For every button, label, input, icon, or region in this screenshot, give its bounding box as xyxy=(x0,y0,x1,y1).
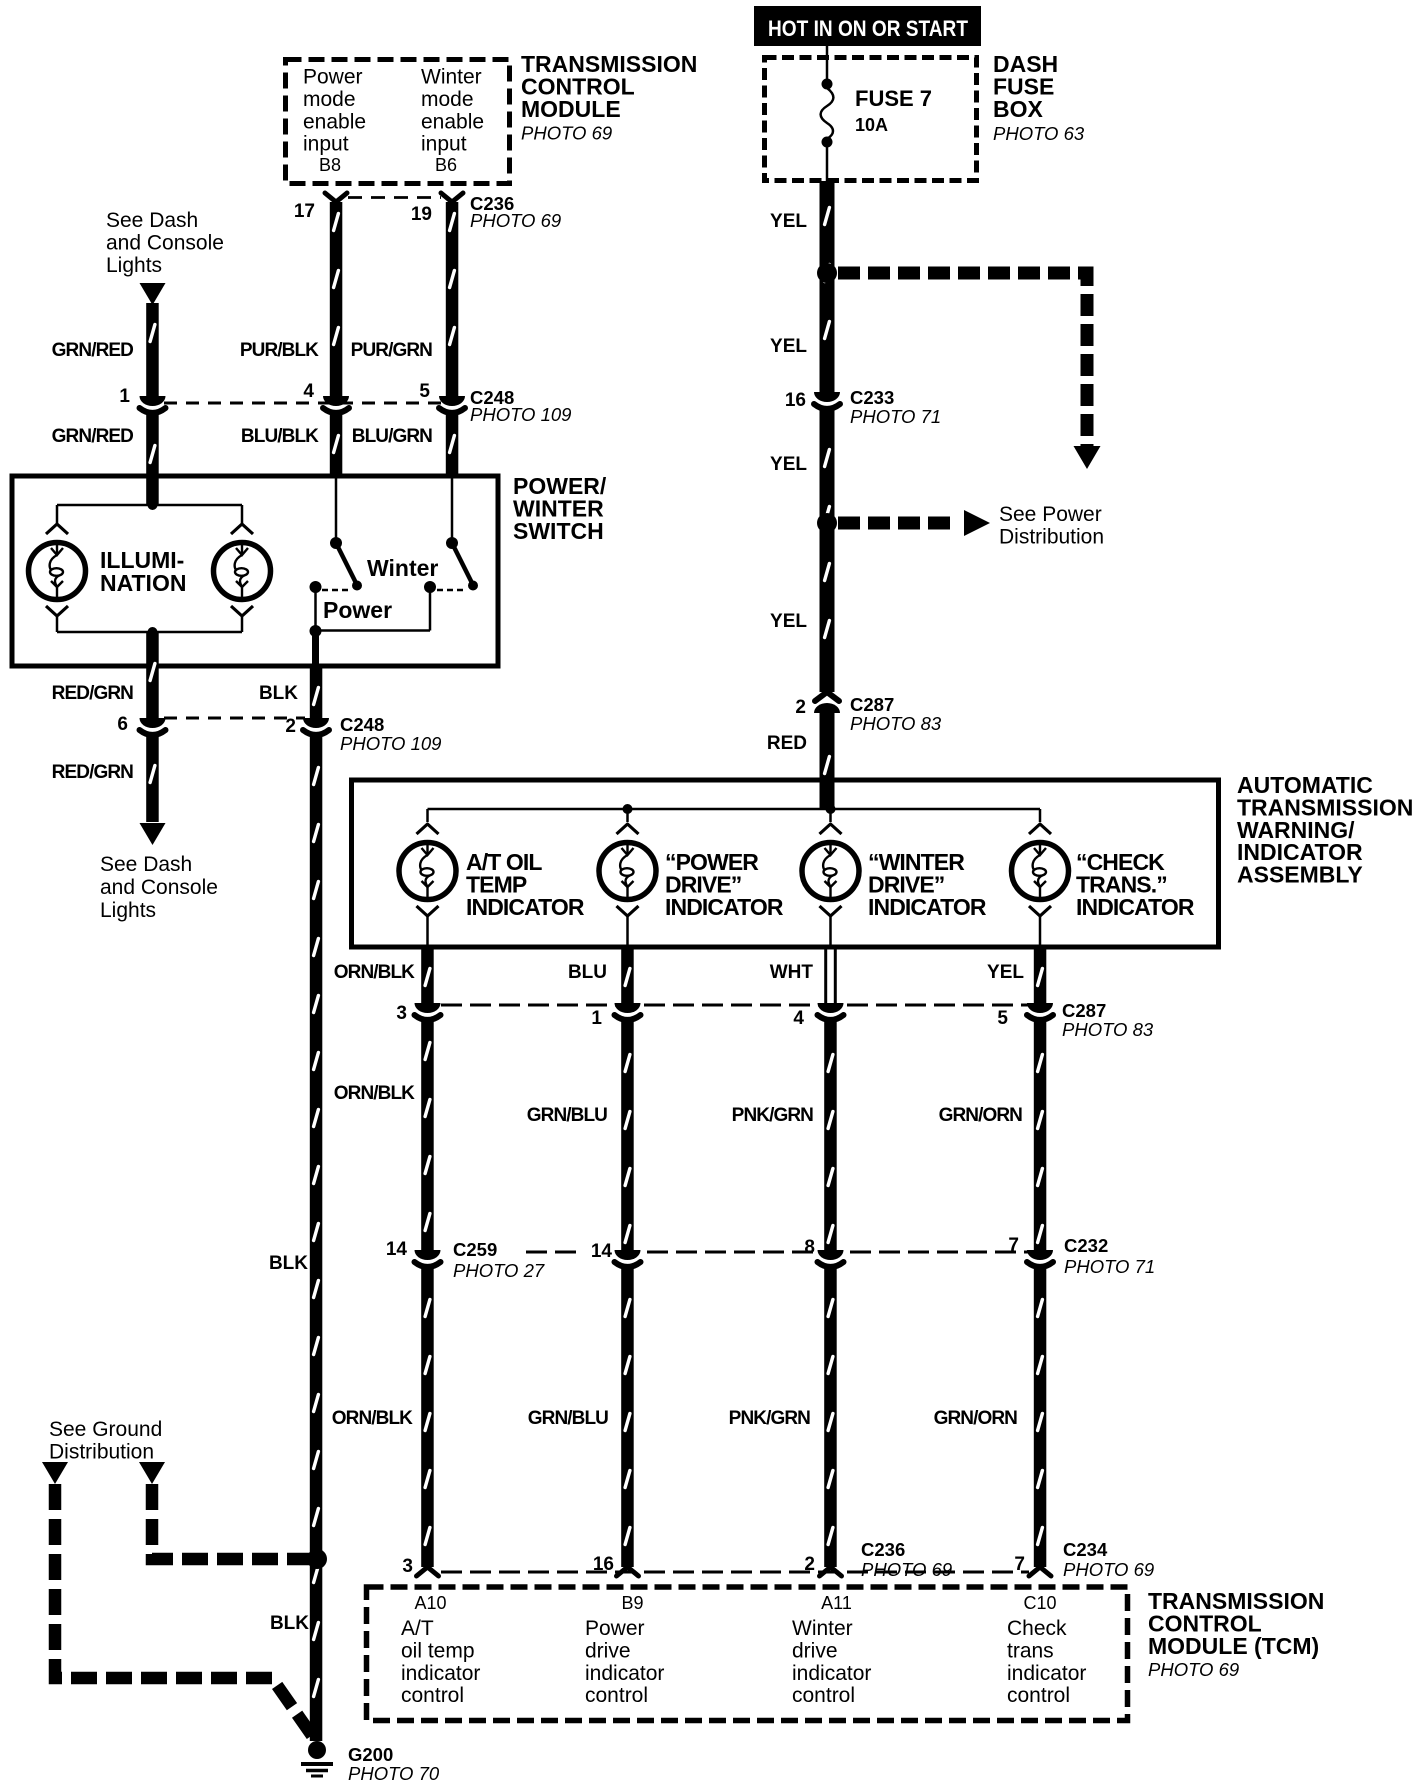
svg-text:4: 4 xyxy=(303,381,314,402)
svg-text:B8: B8 xyxy=(319,155,341,175)
svg-text:Power: Power xyxy=(303,66,363,89)
svg-text:indicator: indicator xyxy=(401,1662,480,1685)
svg-text:ORN/BLK: ORN/BLK xyxy=(332,1408,413,1429)
svg-text:PHOTO 27: PHOTO 27 xyxy=(453,1260,545,1281)
svg-text:10A: 10A xyxy=(855,115,888,135)
svg-text:RED/GRN: RED/GRN xyxy=(52,683,133,704)
svg-text:indicator: indicator xyxy=(1007,1662,1086,1685)
svg-text:GRN/ORN: GRN/ORN xyxy=(934,1408,1018,1429)
svg-text:INDICATOR: INDICATOR xyxy=(466,894,585,920)
svg-text:drive: drive xyxy=(792,1639,838,1662)
svg-text:Distribution: Distribution xyxy=(49,1440,154,1463)
svg-text:Power: Power xyxy=(323,597,392,623)
svg-text:PNK/GRN: PNK/GRN xyxy=(732,1105,813,1126)
svg-text:PHOTO 71: PHOTO 71 xyxy=(850,406,941,427)
svg-text:See Dash: See Dash xyxy=(100,853,192,876)
svg-text:INDICATOR: INDICATOR xyxy=(1076,894,1195,920)
svg-text:mode: mode xyxy=(303,88,356,111)
svg-text:1: 1 xyxy=(119,386,130,407)
svg-text:trans: trans xyxy=(1007,1639,1054,1662)
svg-text:drive: drive xyxy=(585,1639,631,1662)
svg-text:GRN/BLU: GRN/BLU xyxy=(527,1105,607,1126)
svg-text:G200: G200 xyxy=(348,1744,393,1765)
svg-text:5: 5 xyxy=(997,1008,1008,1029)
svg-text:BLU/GRN: BLU/GRN xyxy=(352,426,432,447)
svg-text:PHOTO 69: PHOTO 69 xyxy=(521,123,612,144)
svg-text:indicator: indicator xyxy=(585,1662,664,1685)
svg-text:Lights: Lights xyxy=(100,899,156,922)
svg-text:BOX: BOX xyxy=(993,96,1044,122)
svg-text:PHOTO 70: PHOTO 70 xyxy=(348,1763,440,1784)
svg-text:PHOTO 109: PHOTO 109 xyxy=(470,404,571,425)
svg-text:ORN/BLK: ORN/BLK xyxy=(334,1083,415,1104)
svg-text:C287: C287 xyxy=(850,694,894,715)
svg-text:oil temp: oil temp xyxy=(401,1639,475,1662)
svg-text:YEL: YEL xyxy=(770,611,807,632)
svg-text:INDICATOR: INDICATOR xyxy=(868,894,987,920)
svg-text:indicator: indicator xyxy=(792,1662,871,1685)
svg-text:control: control xyxy=(401,1684,464,1707)
svg-text:YEL: YEL xyxy=(770,336,807,357)
svg-text:YEL: YEL xyxy=(770,211,807,232)
svg-text:RED/GRN: RED/GRN xyxy=(52,762,133,783)
svg-text:Winter: Winter xyxy=(792,1617,853,1640)
svg-text:14: 14 xyxy=(591,1241,613,1262)
svg-text:enable: enable xyxy=(303,110,366,133)
svg-text:Check: Check xyxy=(1007,1617,1067,1640)
svg-text:A11: A11 xyxy=(821,1593,852,1613)
svg-text:INDICATOR: INDICATOR xyxy=(665,894,784,920)
svg-text:2: 2 xyxy=(285,716,296,737)
svg-text:See Power: See Power xyxy=(999,503,1102,526)
svg-text:ASSEMBLY: ASSEMBLY xyxy=(1237,862,1363,888)
svg-text:input: input xyxy=(303,133,349,156)
svg-text:Lights: Lights xyxy=(106,254,162,277)
svg-text:C236: C236 xyxy=(861,1539,905,1560)
svg-text:A10: A10 xyxy=(414,1593,446,1613)
svg-text:RED: RED xyxy=(767,733,807,754)
svg-text:Power: Power xyxy=(585,1617,645,1640)
svg-text:GRN/RED: GRN/RED xyxy=(52,426,133,447)
svg-text:input: input xyxy=(421,133,467,156)
svg-text:C234: C234 xyxy=(1063,1539,1108,1560)
svg-text:MODULE (TCM): MODULE (TCM) xyxy=(1148,1633,1319,1659)
svg-text:17: 17 xyxy=(294,201,315,222)
svg-text:8: 8 xyxy=(804,1237,815,1258)
svg-text:2: 2 xyxy=(804,1554,815,1575)
svg-text:SWITCH: SWITCH xyxy=(513,518,604,544)
svg-text:C259: C259 xyxy=(453,1239,497,1260)
svg-text:Winter: Winter xyxy=(367,555,438,581)
svg-text:A/T: A/T xyxy=(401,1617,434,1640)
svg-text:GRN/BLU: GRN/BLU xyxy=(528,1408,608,1429)
svg-text:C233: C233 xyxy=(850,387,894,408)
svg-text:and Console: and Console xyxy=(100,876,218,899)
svg-text:See Ground: See Ground xyxy=(49,1418,162,1441)
svg-text:Winter: Winter xyxy=(421,66,482,89)
svg-text:19: 19 xyxy=(411,204,432,225)
svg-text:PUR/GRN: PUR/GRN xyxy=(351,340,432,361)
svg-text:BLU: BLU xyxy=(568,962,607,983)
svg-text:3: 3 xyxy=(402,1556,413,1577)
svg-text:PHOTO 63: PHOTO 63 xyxy=(993,123,1085,144)
svg-text:PHOTO 71: PHOTO 71 xyxy=(1064,1256,1155,1277)
svg-text:14: 14 xyxy=(386,1239,408,1260)
svg-text:BLK: BLK xyxy=(270,1613,309,1634)
svg-text:See Dash: See Dash xyxy=(106,209,198,232)
svg-text:PHOTO 69: PHOTO 69 xyxy=(861,1559,952,1580)
svg-text:16: 16 xyxy=(785,390,806,411)
svg-text:GRN/RED: GRN/RED xyxy=(52,340,133,361)
svg-text:and Console: and Console xyxy=(106,231,224,254)
svg-text:C232: C232 xyxy=(1064,1235,1108,1256)
svg-text:MODULE: MODULE xyxy=(521,96,621,122)
svg-text:1: 1 xyxy=(591,1008,602,1029)
svg-text:BLU/BLK: BLU/BLK xyxy=(241,426,319,447)
svg-text:control: control xyxy=(585,1684,648,1707)
svg-text:WHT: WHT xyxy=(770,962,814,983)
svg-text:PHOTO 69: PHOTO 69 xyxy=(1063,1559,1154,1580)
svg-text:7: 7 xyxy=(1008,1235,1019,1256)
svg-text:YEL: YEL xyxy=(770,454,807,475)
svg-text:YEL: YEL xyxy=(987,962,1024,983)
svg-text:C287: C287 xyxy=(1062,1000,1106,1021)
svg-text:4: 4 xyxy=(793,1008,804,1029)
svg-text:2: 2 xyxy=(795,697,806,718)
svg-text:6: 6 xyxy=(117,714,128,735)
svg-text:BLK: BLK xyxy=(259,683,298,704)
svg-text:mode: mode xyxy=(421,88,474,111)
svg-text:PHOTO 69: PHOTO 69 xyxy=(470,210,561,231)
svg-text:FUSE 7: FUSE 7 xyxy=(855,86,932,111)
svg-text:enable: enable xyxy=(421,110,484,133)
svg-text:5: 5 xyxy=(419,381,430,402)
svg-text:7: 7 xyxy=(1014,1554,1025,1575)
svg-text:16: 16 xyxy=(593,1554,614,1575)
svg-text:Distribution: Distribution xyxy=(999,525,1104,548)
svg-text:C10: C10 xyxy=(1023,1593,1056,1613)
svg-text:control: control xyxy=(1007,1684,1070,1707)
svg-text:B9: B9 xyxy=(621,1593,643,1613)
svg-text:PHOTO 109: PHOTO 109 xyxy=(340,733,441,754)
svg-text:NATION: NATION xyxy=(100,570,186,596)
svg-text:3: 3 xyxy=(396,1003,407,1024)
svg-text:control: control xyxy=(792,1684,855,1707)
svg-text:PNK/GRN: PNK/GRN xyxy=(729,1408,810,1429)
svg-text:PUR/BLK: PUR/BLK xyxy=(240,340,319,361)
svg-text:BLK: BLK xyxy=(269,1253,308,1274)
svg-text:GRN/ORN: GRN/ORN xyxy=(939,1105,1023,1126)
svg-text:ORN/BLK: ORN/BLK xyxy=(334,962,415,983)
svg-text:PHOTO 83: PHOTO 83 xyxy=(850,713,942,734)
svg-text:PHOTO 83: PHOTO 83 xyxy=(1062,1019,1154,1040)
svg-text:PHOTO 69: PHOTO 69 xyxy=(1148,1659,1239,1680)
svg-text:B6: B6 xyxy=(435,155,457,175)
svg-text:HOT IN ON OR START: HOT IN ON OR START xyxy=(768,16,968,41)
svg-text:C248: C248 xyxy=(340,714,384,735)
